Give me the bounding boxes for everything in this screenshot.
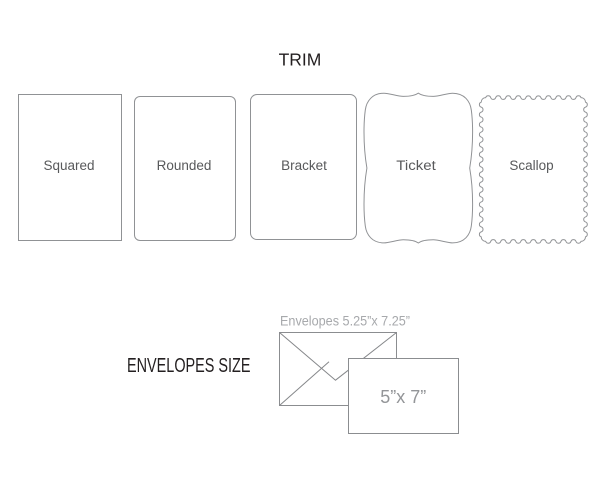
svg-text:Ticket: Ticket [396, 158, 436, 173]
svg-text:TRIM: TRIM [279, 50, 322, 70]
svg-text:5”x 7”: 5”x 7” [380, 387, 426, 407]
svg-text:Envelopes 5.25”x 7.25”: Envelopes 5.25”x 7.25” [280, 314, 410, 329]
svg-text:ENVELOPES SIZE: ENVELOPES SIZE [127, 355, 251, 377]
svg-text:Rounded: Rounded [157, 158, 212, 173]
svg-text:Bracket: Bracket [281, 158, 327, 173]
svg-text:Scallop: Scallop [509, 158, 553, 173]
svg-text:Squared: Squared [43, 158, 94, 173]
